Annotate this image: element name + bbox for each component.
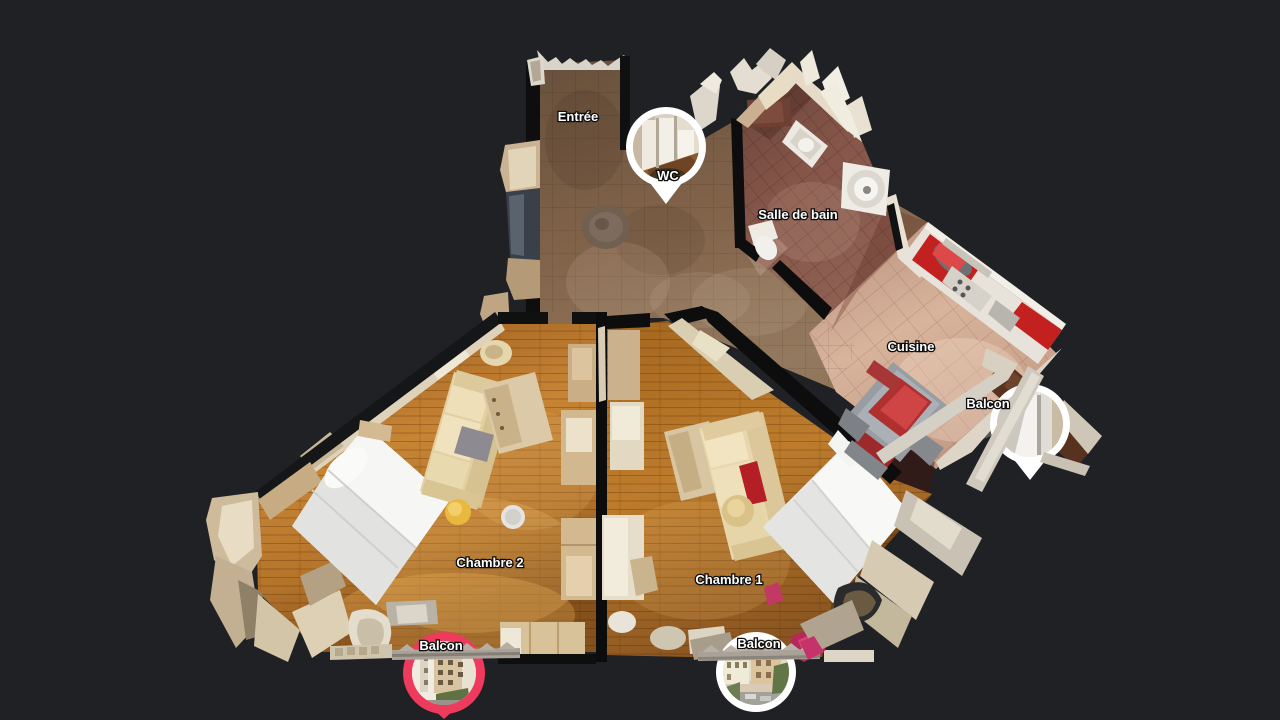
svg-text:Entrée: Entrée bbox=[558, 109, 598, 124]
svg-text:Balcon: Balcon bbox=[737, 636, 780, 651]
svg-text:Salle de bain: Salle de bain bbox=[758, 207, 838, 222]
svg-text:Balcon: Balcon bbox=[966, 396, 1009, 411]
svg-text:Balcon: Balcon bbox=[419, 638, 462, 653]
svg-text:Cuisine: Cuisine bbox=[888, 339, 935, 354]
svg-text:WC: WC bbox=[657, 168, 679, 183]
svg-text:Chambre 1: Chambre 1 bbox=[695, 572, 762, 587]
svg-text:Chambre 2: Chambre 2 bbox=[456, 555, 523, 570]
